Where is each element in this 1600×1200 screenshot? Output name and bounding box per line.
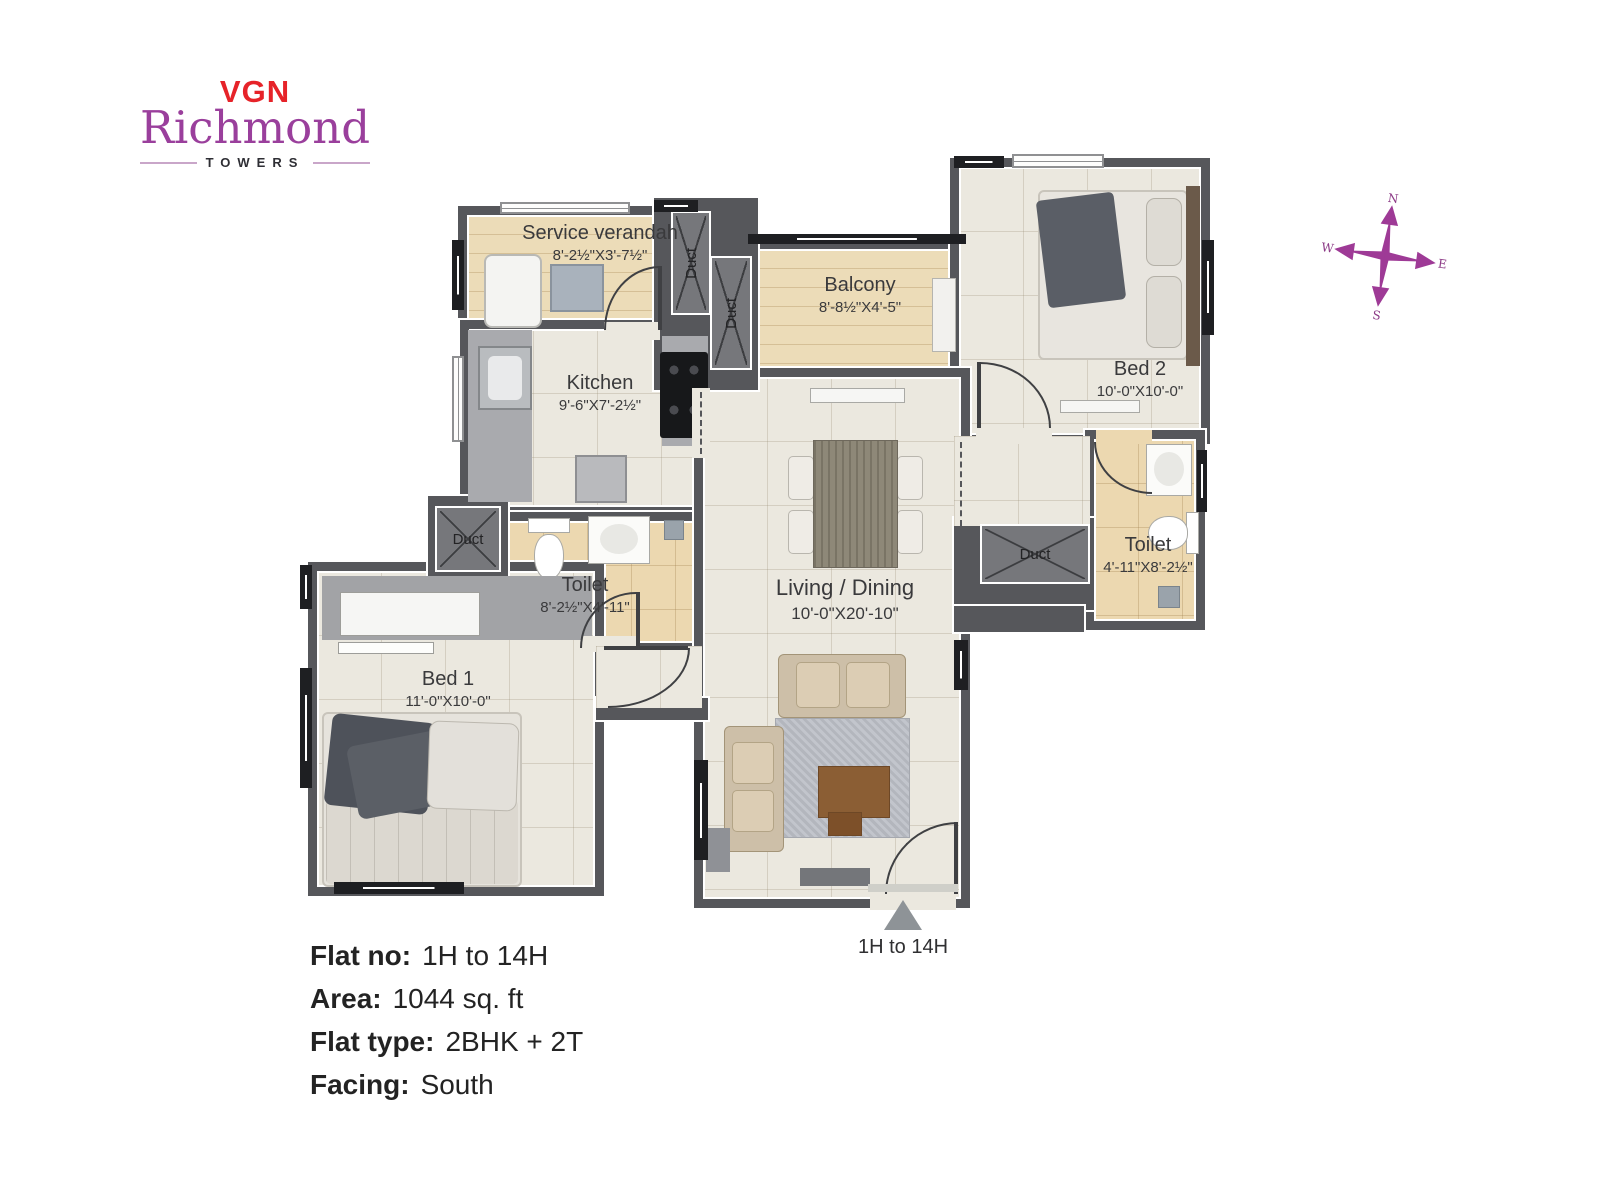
compass-e: E — [1437, 257, 1448, 272]
dashed-opening-line — [700, 392, 704, 454]
entrance-label: 1H to 14H — [833, 936, 973, 959]
window — [300, 668, 312, 788]
dining-table — [813, 440, 898, 568]
window — [452, 356, 464, 442]
sofa-side-cushion — [732, 742, 774, 784]
dashed-opening-line — [960, 442, 964, 526]
room-label-bed2: Bed 2 10'-0"X10'-0" — [1040, 356, 1240, 402]
bed1-wardrobe — [340, 592, 480, 636]
duct-left: Duct — [437, 508, 499, 570]
toilet2-shower — [1158, 586, 1180, 608]
info-row-area: Area: 1044 sq. ft — [310, 977, 583, 1020]
door-leaf-verandah — [658, 266, 662, 330]
compass: N E S W — [1305, 190, 1465, 335]
entrance-arrow — [884, 900, 922, 930]
compass-s: S — [1372, 308, 1382, 323]
window — [954, 640, 968, 690]
window — [654, 200, 698, 212]
duct-balcony: Duct — [712, 258, 750, 368]
window — [1197, 450, 1207, 512]
info-row-facing: Facing: South — [310, 1063, 583, 1106]
sofa-side-cushion — [732, 790, 774, 832]
room-label-service-verandah: Service verandah 8'-2½"X3'-7½" — [500, 220, 700, 266]
wall-segment — [954, 606, 1084, 632]
window — [334, 882, 464, 894]
bed1-bench — [338, 642, 434, 654]
bed1-pillow-white — [426, 720, 519, 811]
side-console — [706, 828, 730, 872]
compass-rose-icon: N E S W — [1305, 190, 1465, 330]
bed2-bench — [1060, 400, 1140, 413]
kitchen-appliance — [575, 455, 627, 503]
opening-bed2 — [976, 428, 1052, 444]
window — [1012, 154, 1104, 168]
compass-w: W — [1320, 240, 1335, 256]
logo-towers: TOWERS — [140, 155, 370, 170]
page: VGN Richmond TOWERS — [0, 0, 1600, 1200]
toilet1-cistern — [528, 518, 570, 533]
logo-rule-right — [313, 162, 370, 164]
bed2-headboard — [1186, 186, 1200, 366]
toilet1-shower — [664, 520, 684, 540]
door-leaf-bed1 — [604, 646, 688, 650]
logo: VGN Richmond TOWERS — [140, 74, 370, 170]
window — [1202, 240, 1214, 335]
sofa-main-cushion — [846, 662, 890, 708]
duct-label: Duct — [453, 531, 484, 548]
bed2-pillow — [1146, 276, 1182, 348]
info-row-flat-no: Flat no: 1H to 14H — [310, 934, 583, 977]
wash-basin — [550, 264, 604, 312]
window — [748, 234, 966, 244]
room-label-bed1: Bed 1 11'-0"X10'-0" — [348, 666, 548, 712]
sofa-main-cushion — [796, 662, 840, 708]
door-leaf-bed2 — [977, 362, 981, 428]
room-label-toilet2: Toilet 4'-11"X8'-2½" — [1068, 532, 1228, 578]
logo-rule-left — [140, 162, 197, 164]
logo-richmond: Richmond — [140, 104, 370, 151]
compass-n: N — [1387, 191, 1399, 206]
toilet2-basin-bowl — [1154, 452, 1184, 486]
room-label-living-dining: Living / Dining 10'-0"X20'-10" — [745, 574, 945, 625]
window — [954, 156, 1004, 168]
duct-label: Duct — [1020, 546, 1051, 563]
coffee-table-ext — [828, 812, 862, 836]
console-table — [810, 388, 905, 403]
coffee-table — [818, 766, 890, 818]
bed2-blanket — [1036, 192, 1127, 309]
toilet1-basin-bowl — [600, 524, 638, 554]
dining-chair — [897, 510, 923, 554]
corridor-floor — [954, 436, 1090, 526]
bed2-pillow — [1146, 198, 1182, 266]
dining-chair — [788, 510, 814, 554]
duct-label: Duct — [723, 298, 740, 329]
room-label-balcony: Balcony 8'-8½"X4'-5" — [760, 272, 960, 318]
dining-chair — [788, 456, 814, 500]
flat-info: Flat no: 1H to 14H Area: 1044 sq. ft Fla… — [310, 934, 583, 1106]
info-row-flat-type: Flat type: 2BHK + 2T — [310, 1020, 583, 1063]
room-label-toilet1: Toilet 8'-2½"X4'-11" — [485, 572, 685, 618]
logo-towers-text: TOWERS — [206, 155, 305, 170]
dining-chair — [897, 456, 923, 500]
window — [452, 240, 464, 310]
room-label-kitchen: Kitchen 9'-6"X7'-2½" — [500, 370, 700, 416]
entrance-threshold — [868, 884, 958, 892]
window — [300, 565, 312, 609]
window — [694, 760, 708, 860]
window — [500, 202, 630, 214]
tv-unit — [800, 868, 870, 886]
